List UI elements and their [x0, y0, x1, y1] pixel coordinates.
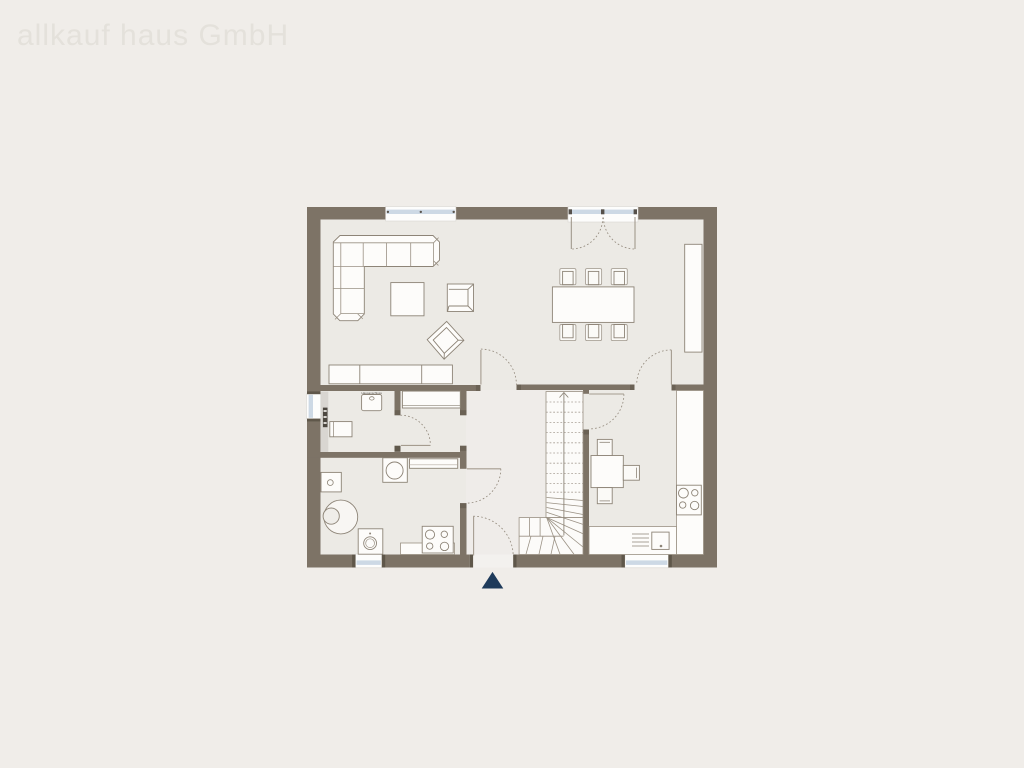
svg-text:allkauf haus GmbH: allkauf haus GmbH [17, 19, 289, 52]
